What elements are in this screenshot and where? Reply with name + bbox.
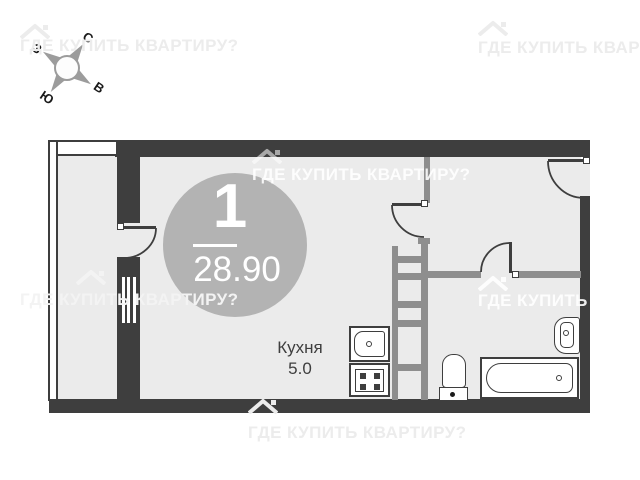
- kitchen-sink-icon: [349, 326, 390, 362]
- watermark-text: ГДЕ КУПИТЬ КВАРТИРУ?: [248, 424, 466, 441]
- bathtub: [480, 357, 579, 399]
- bathtub-drain: [556, 375, 562, 381]
- entrance-door-hinge: [583, 157, 590, 164]
- kitchen-name: Кухня: [258, 337, 342, 358]
- hall-door-leaf: [392, 203, 422, 206]
- kitchen-sink-drain: [366, 341, 372, 347]
- toilet-button: [450, 392, 455, 397]
- watermark-text: ГДЕ КУПИТЬ КВАРТИРУ?: [252, 166, 470, 183]
- entrance-door-leaf: [548, 159, 584, 162]
- entrance-door-arc: [548, 161, 584, 198]
- balcony-door-arc: [124, 228, 156, 258]
- kitchen-area: 5.0: [258, 358, 342, 379]
- stove-icon: [349, 363, 390, 397]
- balcony-door-leaf: [123, 226, 156, 229]
- watermark-text: ГДЕ КУПИТЬ КВАРТИРУ?: [478, 292, 640, 309]
- toilet-tank: [439, 387, 468, 401]
- balcony-door-hinge: [117, 223, 124, 230]
- watermark-text: ГДЕ КУПИТЬ КВАРТИРУ?: [20, 291, 238, 308]
- stove-burner: [374, 373, 380, 379]
- watermark-text: ГДЕ КУПИТЬ КВАРТИРУ?: [20, 37, 238, 54]
- stove-burner: [374, 384, 380, 390]
- bathroom-sink-drain: [563, 330, 569, 336]
- watermark-text: ГДЕ КУПИТЬ КВАРТИРУ?: [478, 39, 640, 56]
- stove-burner: [360, 384, 366, 390]
- hall-door-hinge: [421, 200, 428, 207]
- floor-plan-image: 1 28.90: [0, 0, 640, 480]
- hall-door-arc: [392, 205, 424, 237]
- house-roof-icon: [252, 148, 282, 164]
- kitchen-label: Кухня 5.0: [258, 337, 342, 379]
- stove-burner: [360, 373, 366, 379]
- bathroom-door-leaf: [509, 242, 512, 273]
- toilet-bowl: [442, 354, 466, 388]
- bathroom-door-arc: [481, 243, 510, 272]
- house-roof-icon: [248, 398, 278, 414]
- house-roof-icon: [478, 275, 508, 291]
- bathroom-door-hinge: [512, 271, 519, 278]
- house-roof-icon: [76, 269, 106, 285]
- bathroom-sink: [554, 317, 580, 354]
- house-roof-icon: [478, 20, 508, 36]
